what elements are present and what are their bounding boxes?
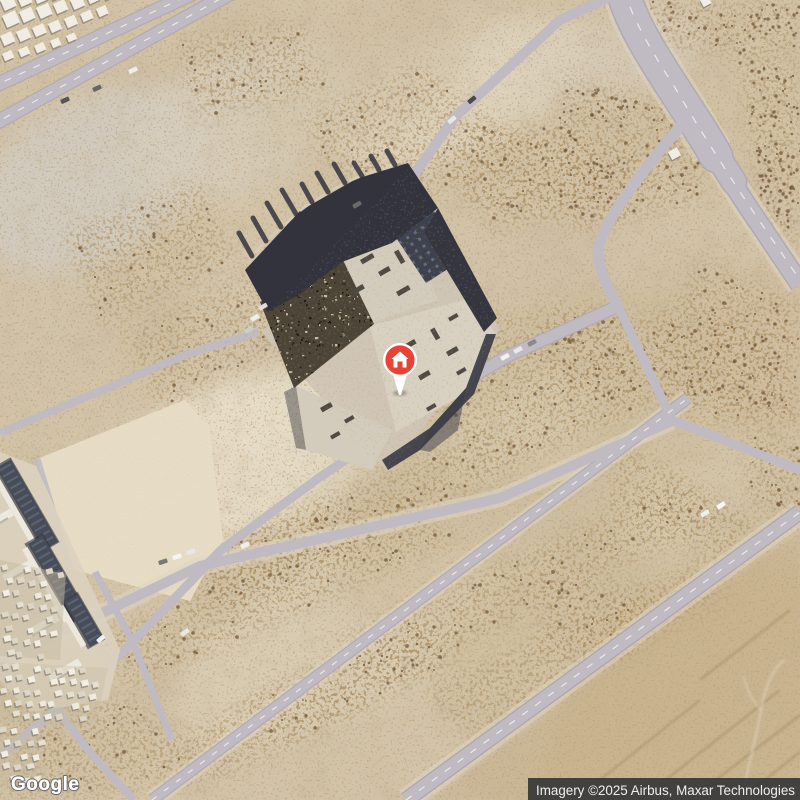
svg-text:Imagery ©2025 Airbus, Maxar Te: Imagery ©2025 Airbus, Maxar Technologies [536,783,795,798]
svg-text:Google: Google [11,774,79,795]
